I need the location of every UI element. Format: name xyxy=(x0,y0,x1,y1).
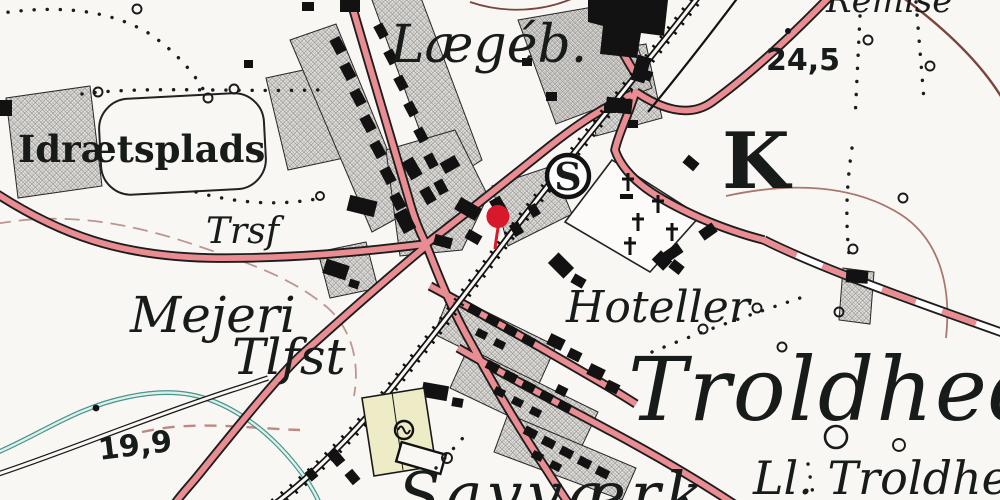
elevation-point-ne xyxy=(785,28,791,34)
label-savvaerk: Savværk xyxy=(398,458,708,500)
label-tlfst: Tlfst xyxy=(232,328,347,386)
label-remise: Remise xyxy=(825,0,952,21)
building xyxy=(302,2,314,11)
station-letter: S xyxy=(554,154,581,199)
topographic-map[interactable]: S Lægéb. Idrætsplads Remise 24,5 K Trsf … xyxy=(0,0,1000,500)
label-elevation-ne: 24,5 xyxy=(766,43,840,78)
label-troldhede: Troldhede xyxy=(628,338,1000,441)
building xyxy=(604,104,616,113)
label-k: K xyxy=(722,116,793,207)
label-laegeb: Lægéb. xyxy=(389,15,587,75)
elevation-point-sw xyxy=(93,405,100,412)
map-canvas[interactable]: S Lægéb. Idrætsplads Remise 24,5 K Trsf … xyxy=(0,0,1000,500)
building xyxy=(546,92,557,101)
building xyxy=(244,60,253,68)
building xyxy=(340,0,360,12)
grave-marker xyxy=(620,194,633,199)
station-symbol: S xyxy=(547,154,589,199)
label-hoteller: Hoteller xyxy=(565,282,753,333)
label-idraetsplads: Idrætsplads xyxy=(18,127,265,171)
building xyxy=(598,8,620,24)
building xyxy=(0,100,12,116)
building xyxy=(628,120,638,128)
label-ll-troldhede: Ll. Troldhede xyxy=(752,451,1000,500)
building xyxy=(846,269,869,284)
building xyxy=(451,397,463,408)
label-trsf: Trsf xyxy=(206,211,285,252)
